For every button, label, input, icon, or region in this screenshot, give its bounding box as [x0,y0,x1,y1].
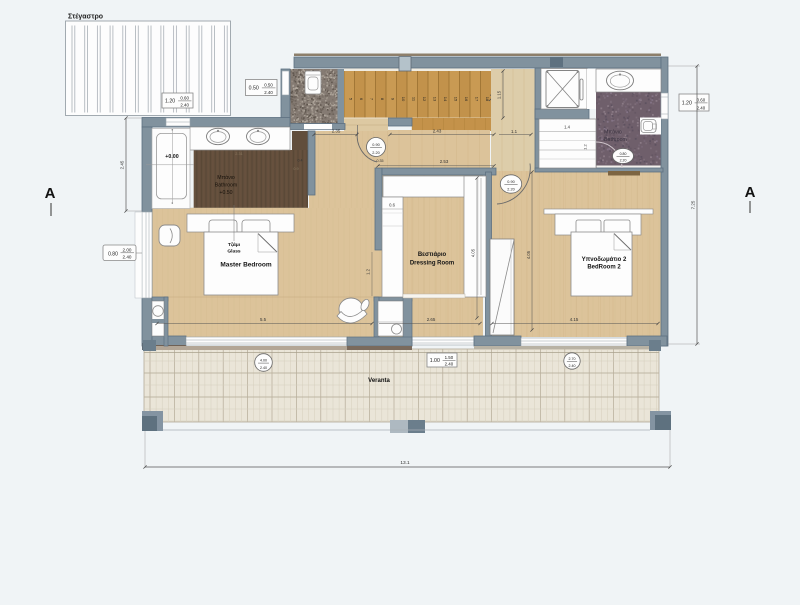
svg-text:2.40: 2.40 [260,366,267,370]
svg-text:0.35: 0.35 [377,159,384,163]
svg-text:Bathroom: Bathroom [215,183,238,189]
svg-text:Bathroom: Bathroom [604,137,628,143]
svg-text:5.5: 5.5 [260,317,267,322]
svg-text:2.40: 2.40 [123,255,132,260]
svg-text:0.9: 0.9 [293,167,298,171]
svg-text:2.40: 2.40 [697,105,706,110]
svg-text:4.05: 4.05 [526,250,531,259]
svg-text:2.40: 2.40 [445,361,454,366]
svg-text:1.2: 1.2 [583,143,588,149]
svg-text:2.40: 2.40 [264,90,273,95]
svg-text:Τζάμι: Τζάμι [228,242,241,248]
svg-text:17: 17 [475,97,480,102]
svg-text:18: 18 [485,97,490,102]
svg-text:1.1: 1.1 [511,129,518,134]
svg-text:Glass: Glass [227,249,241,255]
svg-text:1.15: 1.15 [497,90,502,99]
svg-text:12: 12 [422,97,427,102]
svg-text:2.20: 2.20 [507,188,514,192]
svg-text:+0.00: +0.00 [165,154,178,160]
svg-text:2.53: 2.53 [440,159,449,164]
svg-text:13: 13 [433,97,438,102]
svg-text:0.60: 0.60 [180,96,189,101]
svg-text:0.80: 0.80 [108,251,118,257]
svg-text:A: A [745,184,756,201]
svg-text:10: 10 [401,97,406,102]
svg-text:2.00: 2.00 [123,247,132,252]
svg-text:2.43: 2.43 [433,129,442,134]
svg-text:2.31: 2.31 [235,152,242,156]
svg-text:0.6: 0.6 [389,203,395,208]
svg-text:Μπάνιο: Μπάνιο [217,174,235,181]
svg-text:Μπάνιο: Μπάνιο [604,129,622,136]
svg-text:7.25: 7.25 [691,200,696,209]
svg-text:1.00: 1.00 [430,358,440,364]
svg-text:4.00: 4.00 [260,358,267,362]
svg-text:2.20: 2.20 [372,151,379,155]
svg-text:4.05: 4.05 [471,248,476,257]
svg-text:15: 15 [454,97,459,102]
svg-text:Βεστιάριο: Βεστιάριο [418,252,447,258]
svg-text:Στέγαστρο: Στέγαστρο [68,14,103,21]
svg-text:0.50: 0.50 [249,86,259,92]
svg-text:2.20: 2.20 [620,158,627,162]
svg-text:Master Bedroom: Master Bedroom [220,262,272,269]
svg-text:1.20: 1.20 [165,99,175,105]
svg-text:BedRoom 2: BedRoom 2 [587,265,621,271]
svg-text:Veranta: Veranta [368,378,390,384]
svg-text:2.40: 2.40 [569,364,576,368]
svg-text:1.20: 1.20 [682,101,692,107]
svg-text:13.1: 13.1 [400,460,410,466]
svg-text:0.60: 0.60 [697,98,706,103]
svg-text:1.50: 1.50 [445,355,454,360]
svg-text:0.50: 0.50 [264,83,273,88]
svg-text:1.2: 1.2 [366,268,371,274]
svg-text:2.45: 2.45 [120,160,125,169]
svg-text:+0.50: +0.50 [219,190,232,196]
svg-text:16: 16 [464,97,469,102]
svg-text:2.70: 2.70 [569,357,576,361]
svg-text:14: 14 [443,97,448,102]
svg-text:Υπνοδωμάτιο 2: Υπνοδωμάτιο 2 [582,257,627,263]
svg-text:1.4: 1.4 [564,125,570,130]
svg-text:A: A [45,185,56,202]
svg-text:0.80: 0.80 [620,152,627,156]
svg-text:2.40: 2.40 [180,102,189,107]
svg-text:2.35: 2.35 [332,129,341,134]
svg-text:4.15: 4.15 [570,317,579,322]
svg-text:2.65: 2.65 [427,317,436,322]
svg-text:Dressing Room: Dressing Room [410,261,454,267]
svg-text:0.4: 0.4 [298,159,303,163]
svg-text:0.90: 0.90 [507,180,514,184]
svg-text:0.90: 0.90 [372,143,379,147]
